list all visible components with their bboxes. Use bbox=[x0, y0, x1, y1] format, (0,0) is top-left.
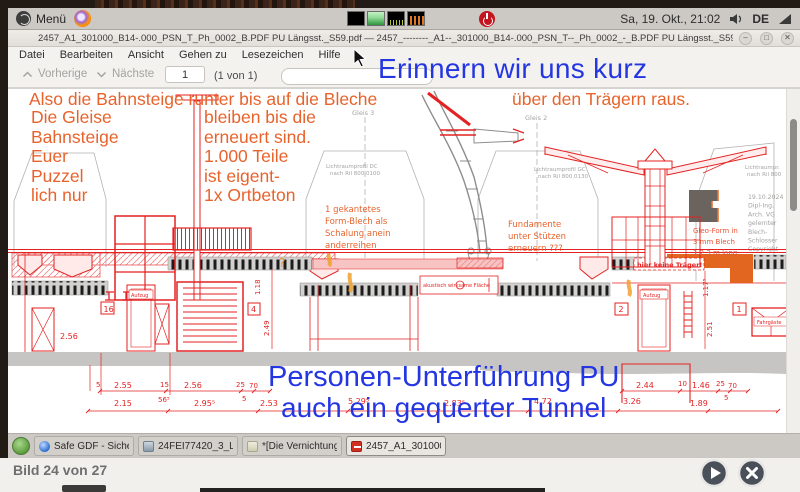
aufzug-label: Aufzug bbox=[643, 293, 660, 299]
browser-icon bbox=[39, 441, 50, 452]
stamp-line: Dipl-Ing. bbox=[748, 203, 774, 210]
previous-page-button[interactable]: Vorherige bbox=[22, 68, 87, 80]
pdf-icon bbox=[351, 441, 362, 452]
memory-monitor-icon[interactable] bbox=[367, 11, 385, 26]
stamp-line: gelernter bbox=[748, 220, 777, 227]
note-gleoform: 1.2.3 m lang bbox=[693, 249, 737, 257]
network-status-icon[interactable] bbox=[778, 13, 792, 25]
task-button-document[interactable]: 24FEI77420_3_LeiB-1... bbox=[138, 436, 238, 456]
clock[interactable]: Sa, 19. Okt., 21:02 bbox=[620, 12, 720, 26]
window-titlebar[interactable]: 2457_A1_301000_B14-.000_PSN_T_Ph_0002_B.… bbox=[8, 30, 800, 47]
cpu-monitor-icon[interactable] bbox=[347, 11, 365, 26]
dim: 5 bbox=[242, 395, 246, 403]
image-counter: Bild 24 von 27 bbox=[13, 462, 107, 478]
window-controls: – □ ✕ bbox=[733, 32, 800, 45]
stamp-line: Arch. VG bbox=[748, 211, 775, 218]
dim: 2.95⁵ bbox=[194, 399, 215, 408]
toolbar: Vorherige Nächste (1 von 1) bbox=[8, 62, 800, 88]
note-fundamente: Fundamente bbox=[508, 220, 561, 230]
power-icon[interactable] bbox=[479, 11, 495, 27]
minimize-button[interactable]: – bbox=[739, 32, 752, 45]
dim: 2.53 bbox=[260, 399, 278, 408]
next-label: Nächste bbox=[112, 68, 154, 80]
note-formblech: Schalung anein bbox=[325, 229, 390, 239]
top-panel: Menü Sa, 19. Okt., 21:02 DE bbox=[8, 8, 800, 30]
text-editor-icon bbox=[247, 441, 258, 452]
menubar: Datei Bearbeiten Ansicht Gehen zu Leseze… bbox=[8, 47, 800, 62]
show-desktop-button[interactable] bbox=[12, 437, 30, 455]
dim: 4.72 bbox=[534, 397, 552, 406]
background-window-strip bbox=[200, 488, 545, 492]
maximize-button[interactable]: □ bbox=[760, 32, 773, 45]
note-fundamente: unter Stützen bbox=[508, 232, 566, 242]
task-button-pdf-active[interactable]: 2457_A1_301000_B14... bbox=[346, 436, 446, 456]
drawing-gray-layer bbox=[8, 91, 786, 374]
dim: 5 bbox=[96, 381, 100, 389]
chevron-up-icon bbox=[22, 71, 33, 78]
menu-lesezeichen[interactable]: Lesezeichen bbox=[242, 49, 304, 61]
search-input[interactable] bbox=[281, 68, 433, 85]
menu-hilfe[interactable]: Hilfe bbox=[318, 49, 340, 61]
page-count-label: (1 von 1) bbox=[214, 70, 257, 82]
dim: 3.26 bbox=[623, 397, 641, 406]
disk-monitor-icon[interactable] bbox=[407, 11, 425, 26]
menu-gehen-zu[interactable]: Gehen zu bbox=[179, 49, 227, 61]
stamp-line: Blech- bbox=[748, 229, 767, 236]
task-label: Safe GDF - Sicheres E... bbox=[54, 441, 129, 452]
boxed-dim: 1 bbox=[737, 305, 742, 314]
boxed-dim: 2 bbox=[619, 305, 624, 314]
menu-ansicht[interactable]: Ansicht bbox=[128, 49, 164, 61]
vertical-dim: 1.17⁵ bbox=[702, 278, 710, 297]
task-label: *[Die Vernichtung der... bbox=[262, 441, 337, 452]
keyboard-layout-indicator[interactable]: DE bbox=[752, 12, 769, 26]
dim: 2.44 bbox=[636, 381, 654, 390]
menu-datei[interactable]: Datei bbox=[19, 49, 45, 61]
dim: 1.46 bbox=[692, 381, 710, 390]
close-button[interactable]: ✕ bbox=[781, 32, 794, 45]
lichtraum-right-1: Lichtraumpr. bbox=[745, 165, 780, 171]
note-formblech: anderreihen bbox=[325, 241, 376, 251]
note-keine-traeger: hier keine Träger! bbox=[637, 261, 702, 269]
distro-logo-icon bbox=[16, 11, 31, 26]
dim: 2.55 bbox=[114, 381, 132, 390]
task-label: 2457_A1_301000_B14... bbox=[366, 441, 441, 452]
lichtraum-left-1: Lichtraumprofil DC bbox=[326, 164, 378, 170]
task-button-editor[interactable]: *[Die Vernichtung der... bbox=[242, 436, 342, 456]
boxed-dim: 16 bbox=[104, 305, 114, 314]
dim-256: 2.56 bbox=[60, 332, 78, 341]
network-monitor-icon[interactable] bbox=[387, 11, 405, 26]
image-viewer-bar: Bild 24 von 27 bbox=[0, 458, 800, 492]
lichtraum-mid-1: Lichtraumprofil GC bbox=[534, 167, 586, 173]
note-gleoform: Gleo-Form in bbox=[693, 227, 738, 235]
chevron-down-icon bbox=[96, 71, 107, 78]
lichtraum-right-2: nach Ril 800 bbox=[747, 172, 782, 178]
stamp-line: 19.10.2024 bbox=[748, 194, 783, 201]
next-page-button[interactable]: Nächste bbox=[96, 68, 154, 80]
mouse-cursor bbox=[353, 48, 367, 68]
dim: 15 bbox=[160, 381, 169, 389]
pdf-document-view[interactable]: Gleis 3 Gleis 2 Lichtraumprofil DC nach … bbox=[8, 88, 800, 433]
window-title: 2457_A1_301000_B14-.000_PSN_T_Ph_0002_B.… bbox=[8, 33, 733, 44]
fahrgaeste-label: Fahrgäste bbox=[757, 320, 782, 326]
taskbar: Safe GDF - Sicheres E... 24FEI77420_3_Le… bbox=[8, 433, 800, 458]
vertical-dim: 2.51 bbox=[706, 321, 714, 337]
dim: 2.56 bbox=[184, 381, 202, 390]
previous-label: Vorherige bbox=[38, 68, 87, 80]
viewer-close-button[interactable] bbox=[737, 458, 767, 488]
task-label: 24FEI77420_3_LeiB-1... bbox=[158, 441, 233, 452]
aufzug-label: Aufzug bbox=[131, 293, 148, 299]
volume-icon[interactable] bbox=[729, 13, 743, 25]
vertical-scrollbar[interactable] bbox=[786, 89, 800, 434]
firefox-launcher-icon[interactable] bbox=[74, 10, 91, 27]
dim: 25 bbox=[236, 381, 245, 389]
applications-menu-button[interactable]: Menü bbox=[8, 8, 74, 29]
slideshow-play-button[interactable] bbox=[699, 458, 729, 488]
scrollbar-thumb[interactable] bbox=[790, 119, 797, 211]
lichtraum-mid-2: nach Ril 800.0130 bbox=[538, 174, 588, 180]
system-monitors bbox=[347, 11, 425, 26]
dim: 2.83⁵ bbox=[444, 399, 465, 408]
page-number-input[interactable] bbox=[165, 66, 205, 83]
note-formblech: Form-Blech als bbox=[325, 217, 388, 227]
question-mark-annotation: ? bbox=[279, 256, 285, 270]
note-formblech: 1 gekantetes bbox=[325, 205, 381, 215]
dim: 2.15 bbox=[114, 399, 132, 408]
panel-status-area: Sa, 19. Okt., 21:02 DE bbox=[479, 11, 800, 27]
lichtraum-left-2: nach Ril 800.0100 bbox=[330, 171, 380, 177]
menu-bearbeiten[interactable]: Bearbeiten bbox=[60, 49, 113, 61]
dim: 10 bbox=[678, 380, 687, 388]
stamp-line: Schlosser bbox=[748, 238, 778, 245]
note-akustik: akustisch wirksame Fläche bbox=[423, 283, 490, 289]
gleis2-label: Gleis 2 bbox=[525, 114, 547, 122]
dim: 1.89 bbox=[690, 399, 708, 408]
vertical-dim: 2.49 bbox=[263, 320, 271, 336]
boxed-dim: 4 bbox=[251, 305, 256, 314]
vertical-dim: 1.18 bbox=[254, 279, 262, 295]
note-gleoform: 3 mm Blech bbox=[693, 238, 735, 246]
dim: 70 bbox=[728, 382, 737, 390]
background-window-edge bbox=[62, 485, 106, 492]
dim: 5.29⁵ bbox=[348, 397, 369, 406]
note-fundamente: erneuern ??? bbox=[508, 244, 563, 254]
menu-label: Menü bbox=[36, 12, 66, 26]
desktop: Menü Sa, 19. Okt., 21:02 DE 2457_A1_3010… bbox=[0, 0, 800, 492]
document-icon bbox=[143, 441, 154, 452]
gleis3-label: Gleis 3 bbox=[352, 109, 374, 117]
dim: 25 bbox=[716, 380, 725, 388]
dim: 56⁵ bbox=[158, 396, 170, 404]
dim: 70 bbox=[249, 382, 258, 390]
task-button-browser[interactable]: Safe GDF - Sicheres E... bbox=[34, 436, 134, 456]
technical-drawing: Gleis 3 Gleis 2 Lichtraumprofil DC nach … bbox=[8, 89, 786, 434]
dim: 5 bbox=[724, 394, 728, 402]
